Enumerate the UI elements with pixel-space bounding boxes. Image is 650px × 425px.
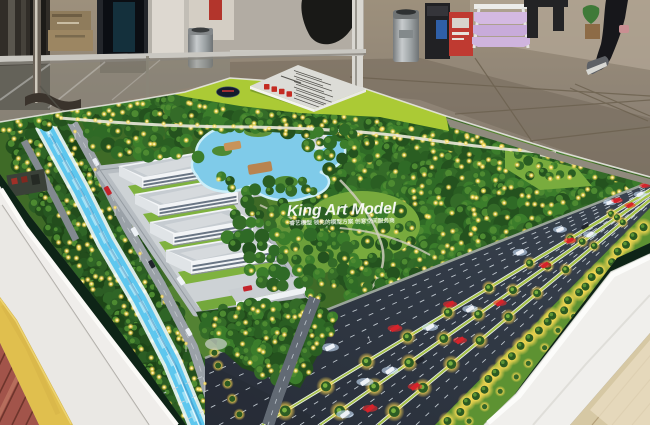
svg-text:King Art Model: King Art Model (287, 200, 397, 220)
